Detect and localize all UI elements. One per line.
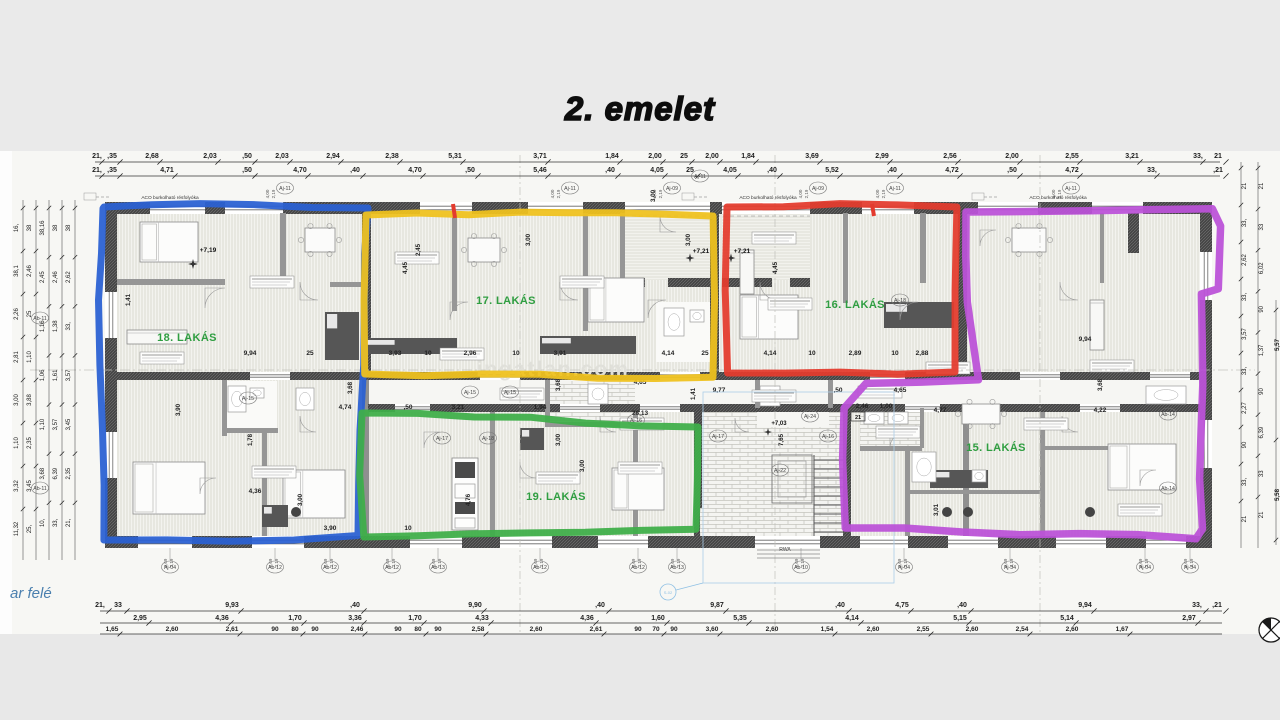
svg-text:Ab-11: Ab-11 [33,316,47,322]
svg-text:2,46: 2,46 [351,626,364,633]
svg-text:10: 10 [512,350,520,357]
svg-text:3,21: 3,21 [1125,153,1139,160]
svg-text:2,45: 2,45 [40,271,46,283]
svg-text:Ab-14: Ab-14 [1161,412,1175,418]
svg-text:1,10: 1,10 [40,418,46,430]
svg-text:1,38: 1,38 [53,320,59,332]
svg-text:+7,21: +7,21 [693,248,710,255]
svg-text:9,90: 9,90 [468,602,482,609]
svg-text:2,69: 2,69 [631,558,636,567]
svg-text:33,: 33, [1193,153,1203,160]
svg-text:1,41: 1,41 [690,387,697,400]
svg-text:1,94: 1,94 [534,404,547,411]
svg-text:21,: 21, [66,518,72,527]
svg-text:4,00: 4,00 [265,189,270,198]
svg-text:2,46: 2,46 [53,271,59,283]
svg-text:5,46: 5,46 [533,167,547,174]
svg-text:4,33: 4,33 [475,615,489,622]
svg-text:5,35: 5,35 [733,615,747,622]
svg-text:2,81: 2,81 [14,351,20,363]
svg-text:3,57: 3,57 [1242,328,1248,340]
svg-text:2,69: 2,69 [533,558,538,567]
svg-text:4,36: 4,36 [215,615,229,622]
svg-text:,35: ,35 [107,153,117,160]
svg-text:3,00: 3,00 [525,233,532,246]
svg-text:5,15: 5,15 [953,615,967,622]
svg-text:Ab-14: Ab-14 [1161,486,1175,492]
svg-text:33,: 33, [1192,602,1202,609]
svg-text:2,38: 2,38 [385,153,399,160]
svg-text:21: 21 [855,415,861,421]
svg-text:ar felé: ar felé [10,585,52,602]
svg-text:Aj-24: Aj-24 [804,414,816,420]
svg-text:90: 90 [271,626,279,633]
svg-text:Aj-15: Aj-15 [504,390,516,396]
svg-text:2,60: 2,60 [766,626,779,633]
svg-text:33,: 33, [53,518,59,527]
svg-text:3,36: 3,36 [348,615,362,622]
svg-text:,50: ,50 [833,387,842,394]
svg-text:3,45: 3,45 [66,418,72,430]
svg-text:80: 80 [291,626,299,633]
svg-text:2. emelet: 2. emelet [564,90,716,127]
svg-text:,40: ,40 [835,602,845,609]
svg-text:Aj-16: Aj-16 [822,434,834,440]
svg-text:1,70: 1,70 [288,615,302,622]
svg-text:3,00: 3,00 [555,433,562,446]
svg-text:90: 90 [1259,305,1265,312]
svg-text:2,00: 2,00 [705,153,719,160]
svg-text:3,00: 3,00 [14,394,20,406]
svg-text:33,: 33, [66,322,72,331]
svg-text:4,05: 4,05 [723,167,737,174]
svg-text:2,69: 2,69 [163,558,168,567]
svg-text:3,32: 3,32 [14,480,20,492]
svg-text:2,62: 2,62 [1242,254,1248,266]
svg-text:Aj-18: Aj-18 [894,298,906,304]
svg-text:2,60: 2,60 [530,626,543,633]
svg-text:Ab-11: Ab-11 [33,486,47,492]
svg-text:1,67: 1,67 [1116,626,1129,633]
svg-text:33,: 33, [1242,366,1248,375]
svg-text:16,: 16, [14,223,20,232]
svg-text:ACO burkolható résfolyóka: ACO burkolható résfolyóka [141,195,199,201]
svg-text:17. LAKÁS: 17. LAKÁS [476,294,536,307]
svg-text:4,70: 4,70 [293,167,307,174]
svg-text:Aj-11: Aj-11 [564,186,576,192]
svg-text:3,90: 3,90 [175,403,182,416]
svg-text:33,: 33, [1242,218,1248,227]
svg-text:Aj-09: Aj-09 [666,186,678,192]
svg-text:2,69: 2,69 [794,558,799,567]
svg-text:Aj-11: Aj-11 [1065,186,1077,192]
svg-text:3,68: 3,68 [40,467,46,479]
svg-text:Aj-11: Aj-11 [889,186,901,192]
svg-text:25: 25 [680,153,688,160]
svg-text:4,00: 4,00 [550,189,555,198]
svg-text:2,00: 2,00 [1005,153,1019,160]
svg-text:,21: ,21 [1213,167,1223,174]
svg-text:2,19: 2,19 [658,189,663,198]
svg-text:4,76: 4,76 [465,493,472,506]
svg-text:3,68: 3,68 [555,378,562,391]
svg-text:10: 10 [404,525,412,532]
svg-text:21,: 21, [92,167,102,174]
svg-text:2,27: 2,27 [1242,402,1248,414]
svg-text:90: 90 [311,626,319,633]
svg-text:90: 90 [1259,388,1265,395]
svg-text:4,14: 4,14 [845,615,859,622]
svg-text:2,69: 2,69 [323,558,328,567]
svg-text:3,57: 3,57 [66,369,72,381]
svg-text:2,00: 2,00 [648,153,662,160]
svg-text:,40: ,40 [767,167,777,174]
svg-text:2,89: 2,89 [849,350,862,357]
svg-text:,50: ,50 [465,167,475,174]
svg-text:15. LAKÁS: 15. LAKÁS [966,441,1026,454]
svg-text:38: 38 [53,224,59,231]
svg-text:Aj-11: Aj-11 [279,186,291,192]
svg-text:,40: ,40 [350,167,360,174]
svg-text:38,16: 38,16 [40,220,46,236]
svg-text:2,19: 2,19 [556,189,561,198]
svg-text:6,39: 6,39 [53,467,59,479]
svg-text:9,77: 9,77 [713,387,726,394]
svg-text:,40: ,40 [350,602,360,609]
svg-text:1,06: 1,06 [40,369,46,381]
svg-text:Aj-09: Aj-09 [812,186,824,192]
svg-text:4,72: 4,72 [1065,167,1079,174]
svg-text:1,10: 1,10 [27,351,33,363]
svg-text:33: 33 [1259,470,1265,477]
svg-text:4,70: 4,70 [408,167,422,174]
svg-text:1,10: 1,10 [14,437,20,449]
svg-text:5,52: 5,52 [825,167,839,174]
svg-text:90: 90 [634,626,642,633]
svg-text:3,60: 3,60 [706,626,719,633]
svg-text:,40: ,40 [595,602,605,609]
svg-text:5,14: 5,14 [1060,615,1074,622]
svg-text:4,72: 4,72 [945,167,959,174]
svg-text:38: 38 [66,224,72,231]
svg-text:5,57: 5,57 [1274,338,1280,351]
svg-text:21: 21 [1242,182,1248,189]
svg-text:16. LAKÁS: 16. LAKÁS [825,298,885,311]
svg-text:25: 25 [701,350,709,357]
svg-text:10: 10 [424,350,432,357]
svg-text:2,35: 2,35 [66,467,72,479]
svg-text:3,71: 3,71 [533,153,547,160]
svg-text:2,69: 2,69 [1138,558,1143,567]
svg-text:,50: ,50 [242,167,252,174]
svg-text:Aj-15: Aj-15 [242,396,254,402]
svg-text:19. LAKÁS: 19. LAKÁS [526,490,586,503]
svg-text:,21: ,21 [1212,602,1222,609]
svg-text:2,55: 2,55 [1065,153,1079,160]
svg-text:4,14: 4,14 [662,350,675,357]
svg-text:2,19: 2,19 [271,189,276,198]
svg-text:90: 90 [1242,441,1248,448]
svg-text:80: 80 [414,626,422,633]
svg-text:2,69: 2,69 [897,558,902,567]
svg-text:Aj-11: Aj-11 [694,174,706,180]
svg-text:2,69: 2,69 [1183,558,1188,567]
svg-text:2,69: 2,69 [1003,558,1008,567]
svg-text:,50: ,50 [1007,167,1017,174]
svg-text:9,94: 9,94 [244,350,257,357]
svg-text:Aj-15: Aj-15 [464,390,476,396]
svg-text:4,36: 4,36 [580,615,594,622]
svg-text:2,55: 2,55 [917,626,930,633]
svg-text:4,36: 4,36 [249,488,262,495]
svg-text:21: 21 [1214,153,1222,160]
svg-text:2,19: 2,19 [881,189,886,198]
svg-text:2,54: 2,54 [1016,626,1029,633]
svg-text:5,31: 5,31 [448,153,462,160]
svg-text:3,00: 3,00 [297,493,304,506]
svg-text:90: 90 [394,626,402,633]
svg-text:S-02: S-02 [664,590,673,595]
svg-text:4,45: 4,45 [402,261,409,274]
svg-text:1,41: 1,41 [125,293,132,306]
svg-text:2,56: 2,56 [943,153,957,160]
svg-text:2,96: 2,96 [464,350,477,357]
svg-text:21,: 21, [92,153,102,160]
svg-text:1,60: 1,60 [651,615,665,622]
svg-text:2,99: 2,99 [875,153,889,160]
svg-text:2,19: 2,19 [1057,189,1062,198]
svg-text:1,61: 1,61 [53,369,59,381]
svg-text:6,02: 6,02 [1259,262,1265,274]
svg-text:2,69: 2,69 [268,558,273,567]
svg-text:33: 33 [1259,223,1265,230]
svg-text:21: 21 [1259,182,1265,189]
svg-text:2,62: 2,62 [66,271,72,283]
svg-text:2,88: 2,88 [916,350,929,357]
svg-text:3,88: 3,88 [27,394,33,406]
svg-text:2,26: 2,26 [14,308,20,320]
svg-text:2,60: 2,60 [966,626,979,633]
svg-text:3,90: 3,90 [324,525,337,532]
svg-text:2,69: 2,69 [431,558,436,567]
svg-text:25: 25 [306,350,314,357]
svg-text:4,65: 4,65 [894,387,907,394]
svg-text:5,58: 5,58 [1274,488,1280,501]
svg-text:2,61: 2,61 [590,626,603,633]
svg-text:1,78: 1,78 [247,433,254,446]
svg-text:2,58: 2,58 [472,626,485,633]
svg-text:6,39: 6,39 [1259,426,1265,438]
svg-text:2,95: 2,95 [133,615,147,622]
svg-text:4,74: 4,74 [339,404,352,411]
svg-text:3,00: 3,00 [685,233,692,246]
svg-text:,40: ,40 [957,602,967,609]
svg-text:2,19: 2,19 [804,189,809,198]
svg-text:2,45: 2,45 [415,243,422,256]
svg-text:3,93: 3,93 [389,350,402,357]
svg-text:10,: 10, [40,518,46,527]
svg-text:1,84: 1,84 [605,153,619,160]
svg-text:9,94: 9,94 [1078,602,1092,609]
svg-text:1,84: 1,84 [741,153,755,160]
svg-text:Aj-18: Aj-18 [482,436,494,442]
svg-text:2,60: 2,60 [1066,626,1079,633]
svg-text:,40: ,40 [887,167,897,174]
svg-text:18. LAKÁS: 18. LAKÁS [157,331,217,344]
svg-text:ACO burkolható résfolyóka: ACO burkolható résfolyóka [739,195,797,201]
svg-text:Aj-22: Aj-22 [774,468,786,474]
svg-text:70: 70 [652,626,660,633]
svg-text:+7,03: +7,03 [771,421,787,427]
svg-text:Aj-17: Aj-17 [436,436,448,442]
svg-text:9,94: 9,94 [1079,336,1092,343]
svg-text:1,00: 1,00 [880,403,893,410]
svg-text:90: 90 [670,626,678,633]
svg-text:33,: 33, [1242,292,1248,301]
svg-text:3,68: 3,68 [347,381,354,394]
svg-text:+7,19: +7,19 [200,247,217,254]
svg-text:21: 21 [1242,515,1248,522]
svg-text:4,77: 4,77 [934,407,947,414]
svg-text:1,70: 1,70 [408,615,422,622]
svg-text:4,05: 4,05 [650,167,664,174]
svg-text:3,68: 3,68 [1097,378,1104,391]
svg-text:10: 10 [808,350,816,357]
svg-text:28,13: 28,13 [632,410,649,417]
svg-text:3,21: 3,21 [452,404,465,411]
svg-text:4,22: 4,22 [1094,407,1107,414]
svg-text:4,00: 4,00 [875,189,880,198]
svg-text:4,00: 4,00 [652,189,657,198]
svg-text:2,61: 2,61 [226,626,239,633]
svg-text:2,60: 2,60 [867,626,880,633]
svg-text:33,: 33, [1147,167,1157,174]
svg-text:2,94: 2,94 [326,153,340,160]
svg-text:21,: 21, [95,602,105,609]
svg-text:11,32: 11,32 [14,521,20,536]
svg-text:2,46: 2,46 [27,265,33,277]
svg-text:2,97: 2,97 [1182,615,1196,622]
svg-text:3,69: 3,69 [805,153,819,160]
svg-text:4,75: 4,75 [895,602,909,609]
svg-text:4,45: 4,45 [772,261,779,274]
svg-text:7,65: 7,65 [778,433,785,446]
svg-text:2,69: 2,69 [385,558,390,567]
svg-text:9,87: 9,87 [710,602,724,609]
svg-text:1,54: 1,54 [821,626,834,633]
svg-text:90: 90 [434,626,442,633]
svg-text:38: 38 [27,224,33,231]
svg-text:+7,21: +7,21 [734,248,751,255]
svg-text:2,60: 2,60 [166,626,179,633]
svg-text:4,00: 4,00 [1051,189,1056,198]
svg-text:38,1: 38,1 [14,265,20,277]
svg-text:2,68: 2,68 [145,153,159,160]
svg-text:2,69: 2,69 [670,558,675,567]
svg-text:10: 10 [891,350,899,357]
svg-text:1,37: 1,37 [1259,344,1265,356]
svg-text:3,00: 3,00 [579,459,586,472]
svg-text:3,01: 3,01 [933,503,940,516]
svg-text:3,91: 3,91 [554,350,567,357]
svg-text:33,: 33, [1242,477,1248,486]
svg-text:,35: ,35 [107,167,117,174]
svg-text:4,00: 4,00 [798,189,803,198]
svg-text:25,: 25, [27,524,33,533]
svg-text:,50: ,50 [242,153,252,160]
svg-text:4,71: 4,71 [160,167,174,174]
svg-text:4,14: 4,14 [764,350,777,357]
svg-text:2,46: 2,46 [856,403,869,410]
svg-text:3,57: 3,57 [53,418,59,430]
svg-text:2,03: 2,03 [275,153,289,160]
svg-text:,40: ,40 [605,167,615,174]
svg-text:33: 33 [114,602,122,609]
svg-text:9,93: 9,93 [225,602,239,609]
svg-text:2,35: 2,35 [27,437,33,449]
svg-text:Aj-17: Aj-17 [712,434,724,440]
svg-text:1,65: 1,65 [106,626,119,633]
svg-text:21: 21 [1259,511,1265,518]
svg-text:2,03: 2,03 [203,153,217,160]
